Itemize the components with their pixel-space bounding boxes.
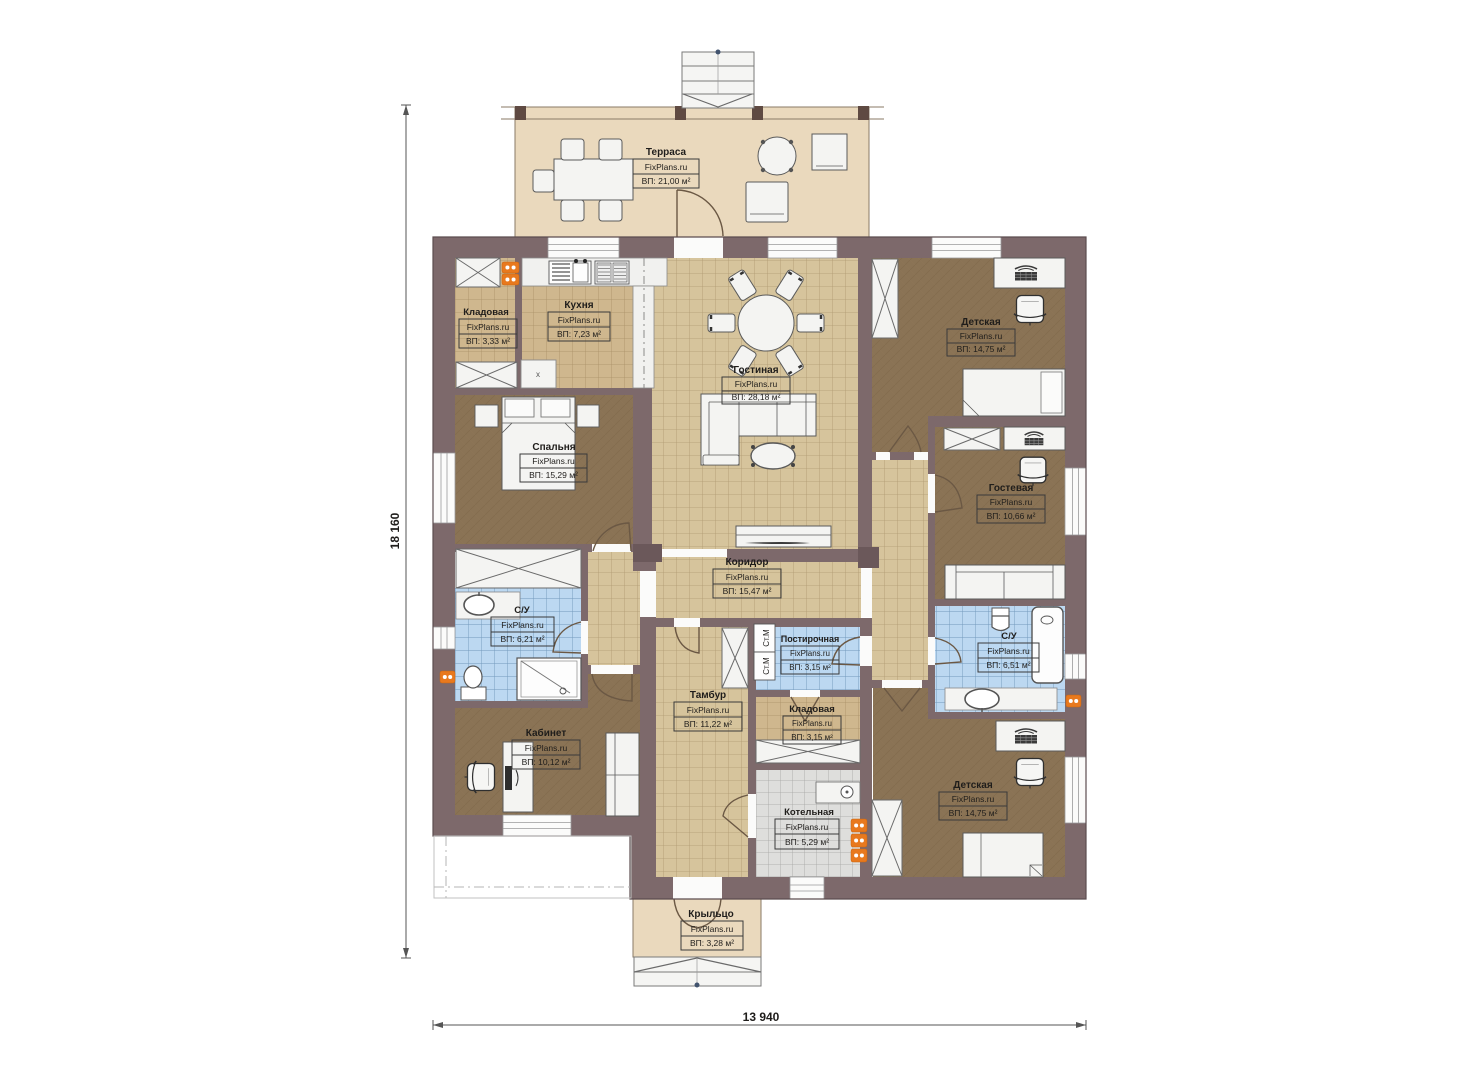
svg-text:Детская: Детская <box>953 780 993 791</box>
svg-text:Кладовая: Кладовая <box>463 307 509 318</box>
svg-text:ВП: 3,28 м²: ВП: 3,28 м² <box>690 938 734 948</box>
svg-text:FixPlans.ru: FixPlans.ru <box>792 719 832 728</box>
svg-text:ВП: 3,15 м²: ВП: 3,15 м² <box>789 663 831 672</box>
svg-text:Ст.М: Ст.М <box>762 657 771 675</box>
svg-text:Детская: Детская <box>961 317 1001 328</box>
svg-text:Гостевая: Гостевая <box>989 483 1034 494</box>
svg-text:FixPlans.ru: FixPlans.ru <box>525 743 568 753</box>
svg-text:FixPlans.ru: FixPlans.ru <box>501 620 544 630</box>
svg-text:ВП: 6,21 м²: ВП: 6,21 м² <box>500 634 544 644</box>
svg-text:Кухня: Кухня <box>564 300 593 311</box>
svg-text:FixPlans.ru: FixPlans.ru <box>790 649 830 658</box>
svg-text:FixPlans.ru: FixPlans.ru <box>987 646 1030 656</box>
svg-text:FixPlans.ru: FixPlans.ru <box>645 162 688 172</box>
svg-text:FixPlans.ru: FixPlans.ru <box>786 822 829 832</box>
svg-text:Ст.М: Ст.М <box>762 629 771 647</box>
svg-text:FixPlans.ru: FixPlans.ru <box>735 379 778 389</box>
svg-text:FixPlans.ru: FixPlans.ru <box>990 497 1033 507</box>
svg-text:ВП: 7,23 м²: ВП: 7,23 м² <box>557 329 601 339</box>
svg-text:Спальня: Спальня <box>532 442 575 453</box>
svg-text:x: x <box>536 370 540 379</box>
svg-text:ВП: 6,51 м²: ВП: 6,51 м² <box>986 660 1030 670</box>
svg-text:Кабинет: Кабинет <box>526 727 567 739</box>
svg-text:FixPlans.ru: FixPlans.ru <box>960 331 1003 341</box>
svg-text:ВП: 15,29 м²: ВП: 15,29 м² <box>529 470 578 480</box>
svg-text:Котельная: Котельная <box>784 807 834 818</box>
svg-text:Тамбур: Тамбур <box>690 689 726 701</box>
svg-text:13 940: 13 940 <box>743 1010 780 1024</box>
svg-text:ВП: 3,15 м²: ВП: 3,15 м² <box>791 733 833 742</box>
svg-text:FixPlans.ru: FixPlans.ru <box>726 572 769 582</box>
svg-text:Кладовая: Кладовая <box>789 704 835 715</box>
svg-text:ВП: 5,29 м²: ВП: 5,29 м² <box>785 837 829 847</box>
svg-text:FixPlans.ru: FixPlans.ru <box>532 456 575 466</box>
svg-text:С/У: С/У <box>514 605 530 616</box>
svg-text:Крыльцо: Крыльцо <box>688 909 734 920</box>
svg-text:ВП: 15,47 м²: ВП: 15,47 м² <box>723 586 772 596</box>
svg-text:Коридор: Коридор <box>725 557 768 568</box>
svg-text:ВП: 10,12 м²: ВП: 10,12 м² <box>522 757 571 767</box>
svg-text:С/У: С/У <box>1001 631 1017 642</box>
svg-text:FixPlans.ru: FixPlans.ru <box>467 322 510 332</box>
svg-text:FixPlans.ru: FixPlans.ru <box>687 705 730 715</box>
svg-text:Гостиная: Гостиная <box>733 365 778 376</box>
svg-text:ВП: 11,22 м²: ВП: 11,22 м² <box>684 719 732 729</box>
svg-text:FixPlans.ru: FixPlans.ru <box>952 794 995 804</box>
svg-text:FixPlans.ru: FixPlans.ru <box>691 924 734 934</box>
svg-text:ВП: 14,75 м²: ВП: 14,75 м² <box>957 344 1006 354</box>
svg-text:ВП: 21,00 м²: ВП: 21,00 м² <box>642 176 691 186</box>
svg-text:Постирочная: Постирочная <box>781 634 839 644</box>
svg-text:ВП: 14,75 м²: ВП: 14,75 м² <box>949 808 998 818</box>
svg-text:Терраса: Терраса <box>646 147 687 158</box>
svg-text:ВП: 10,66 м²: ВП: 10,66 м² <box>987 511 1036 521</box>
svg-text:FixPlans.ru: FixPlans.ru <box>558 315 601 325</box>
svg-text:ВП: 3,33 м²: ВП: 3,33 м² <box>466 336 510 346</box>
svg-text:ВП: 28,18 м²: ВП: 28,18 м² <box>732 392 781 402</box>
svg-text:18 160: 18 160 <box>388 512 402 549</box>
